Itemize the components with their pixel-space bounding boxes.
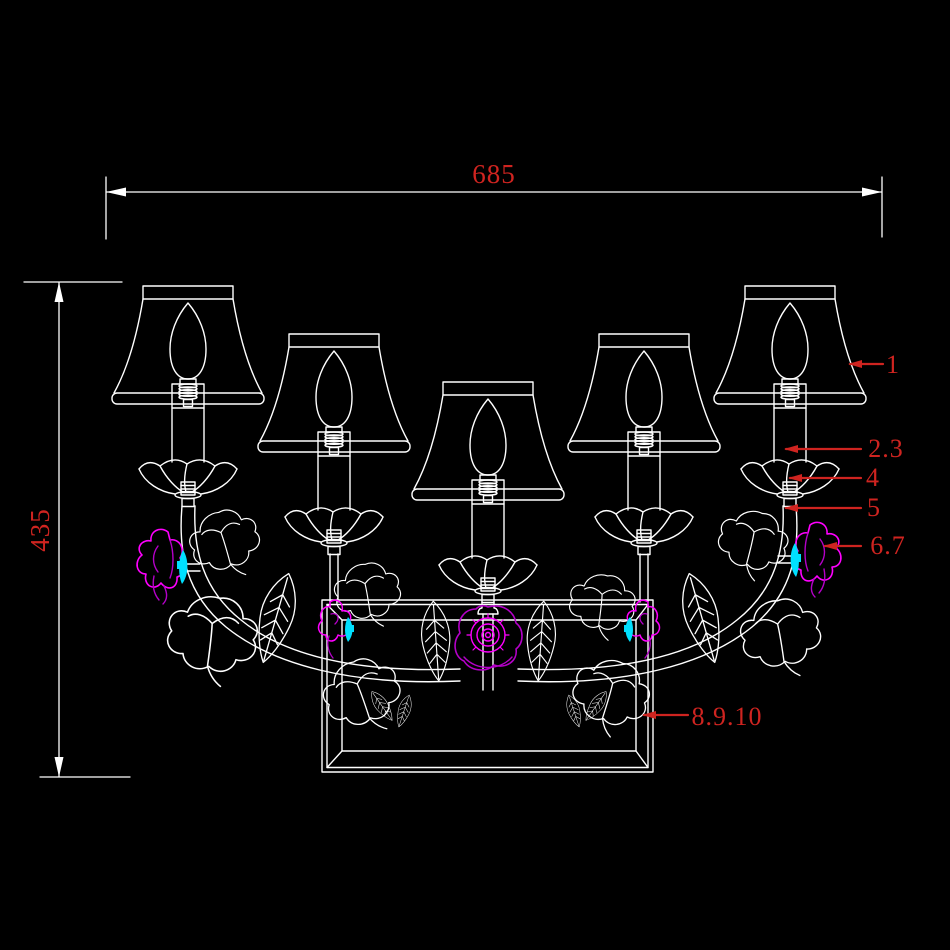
porcelain-flowers	[137, 522, 841, 670]
callout-label-1: 1	[858, 351, 928, 379]
height-dimension-label: 435	[26, 480, 54, 580]
lamp-assembly-4	[568, 334, 720, 555]
callout-label-8-9-10: 8.9.10	[657, 703, 797, 731]
dimension-arrowheads	[55, 188, 883, 778]
callout-label-2-3: 2.3	[851, 435, 921, 463]
callout-label-6-7: 6.7	[853, 532, 923, 560]
center-rose	[455, 606, 522, 670]
wall-mount-base	[322, 600, 653, 772]
lamp-assembly-2	[258, 334, 410, 555]
cad-line-drawing	[0, 0, 950, 950]
callout-label-4: 4	[838, 464, 908, 492]
lamp-assembly-1	[112, 286, 264, 507]
callout-label-5: 5	[839, 494, 909, 522]
lamp-assembly-3	[412, 382, 564, 603]
width-dimension-label: 685	[430, 160, 558, 188]
scroll-arm-left	[181, 506, 460, 682]
cad-viewport: 685 435 1 2.3 4 5 6.7 8.9.10	[0, 0, 950, 950]
